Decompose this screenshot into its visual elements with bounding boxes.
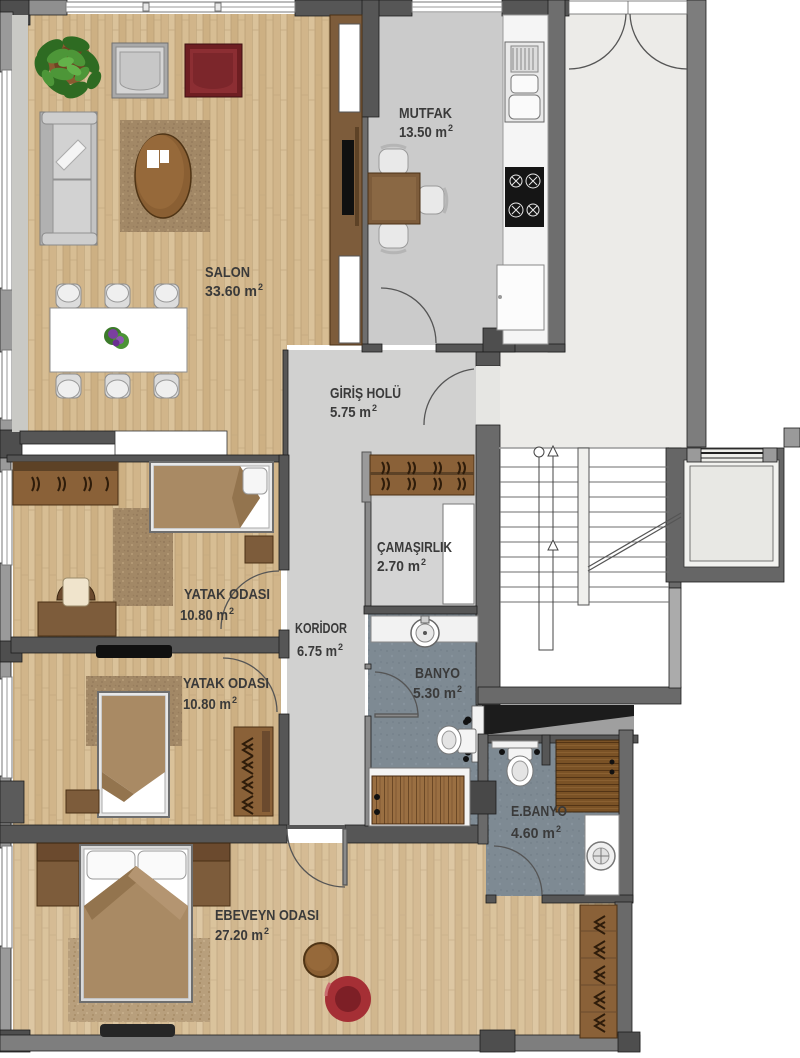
svg-text:E.BANYO: E.BANYO bbox=[511, 803, 567, 820]
svg-text:2: 2 bbox=[372, 403, 377, 413]
svg-text:5.75 m: 5.75 m bbox=[330, 404, 371, 421]
svg-text:2: 2 bbox=[556, 824, 561, 834]
svg-text:2: 2 bbox=[232, 695, 237, 705]
svg-text:SALON: SALON bbox=[205, 264, 250, 281]
svg-text:2: 2 bbox=[264, 926, 269, 936]
svg-text:MUTFAK: MUTFAK bbox=[399, 105, 452, 122]
svg-text:33.60 m: 33.60 m bbox=[205, 283, 257, 300]
svg-text:EBEVEYN ODASI: EBEVEYN ODASI bbox=[215, 907, 319, 924]
svg-text:10.80 m: 10.80 m bbox=[183, 696, 231, 713]
svg-text:YATAK ODASI: YATAK ODASI bbox=[184, 586, 270, 603]
svg-text:4.60 m: 4.60 m bbox=[511, 825, 555, 842]
svg-text:BANYO: BANYO bbox=[415, 665, 460, 682]
svg-text:2: 2 bbox=[229, 606, 234, 616]
svg-text:2: 2 bbox=[448, 123, 453, 133]
svg-text:5.30 m: 5.30 m bbox=[413, 685, 456, 702]
svg-text:27.20 m: 27.20 m bbox=[215, 927, 263, 944]
svg-text:ÇAMAŞIRLIK: ÇAMAŞIRLIK bbox=[377, 539, 452, 556]
svg-text:GİRİŞ HOLÜ: GİRİŞ HOLÜ bbox=[330, 385, 401, 402]
svg-text:2: 2 bbox=[457, 684, 462, 694]
svg-text:6.75 m: 6.75 m bbox=[297, 643, 337, 660]
svg-text:2: 2 bbox=[258, 282, 263, 292]
svg-text:2: 2 bbox=[421, 557, 426, 567]
svg-text:2: 2 bbox=[338, 642, 343, 652]
svg-text:YATAK ODASI: YATAK ODASI bbox=[183, 675, 269, 692]
svg-text:10.80 m: 10.80 m bbox=[180, 607, 228, 624]
svg-text:2.70 m: 2.70 m bbox=[377, 558, 420, 575]
svg-text:KORİDOR: KORİDOR bbox=[295, 620, 347, 637]
svg-text:13.50 m: 13.50 m bbox=[399, 124, 447, 141]
